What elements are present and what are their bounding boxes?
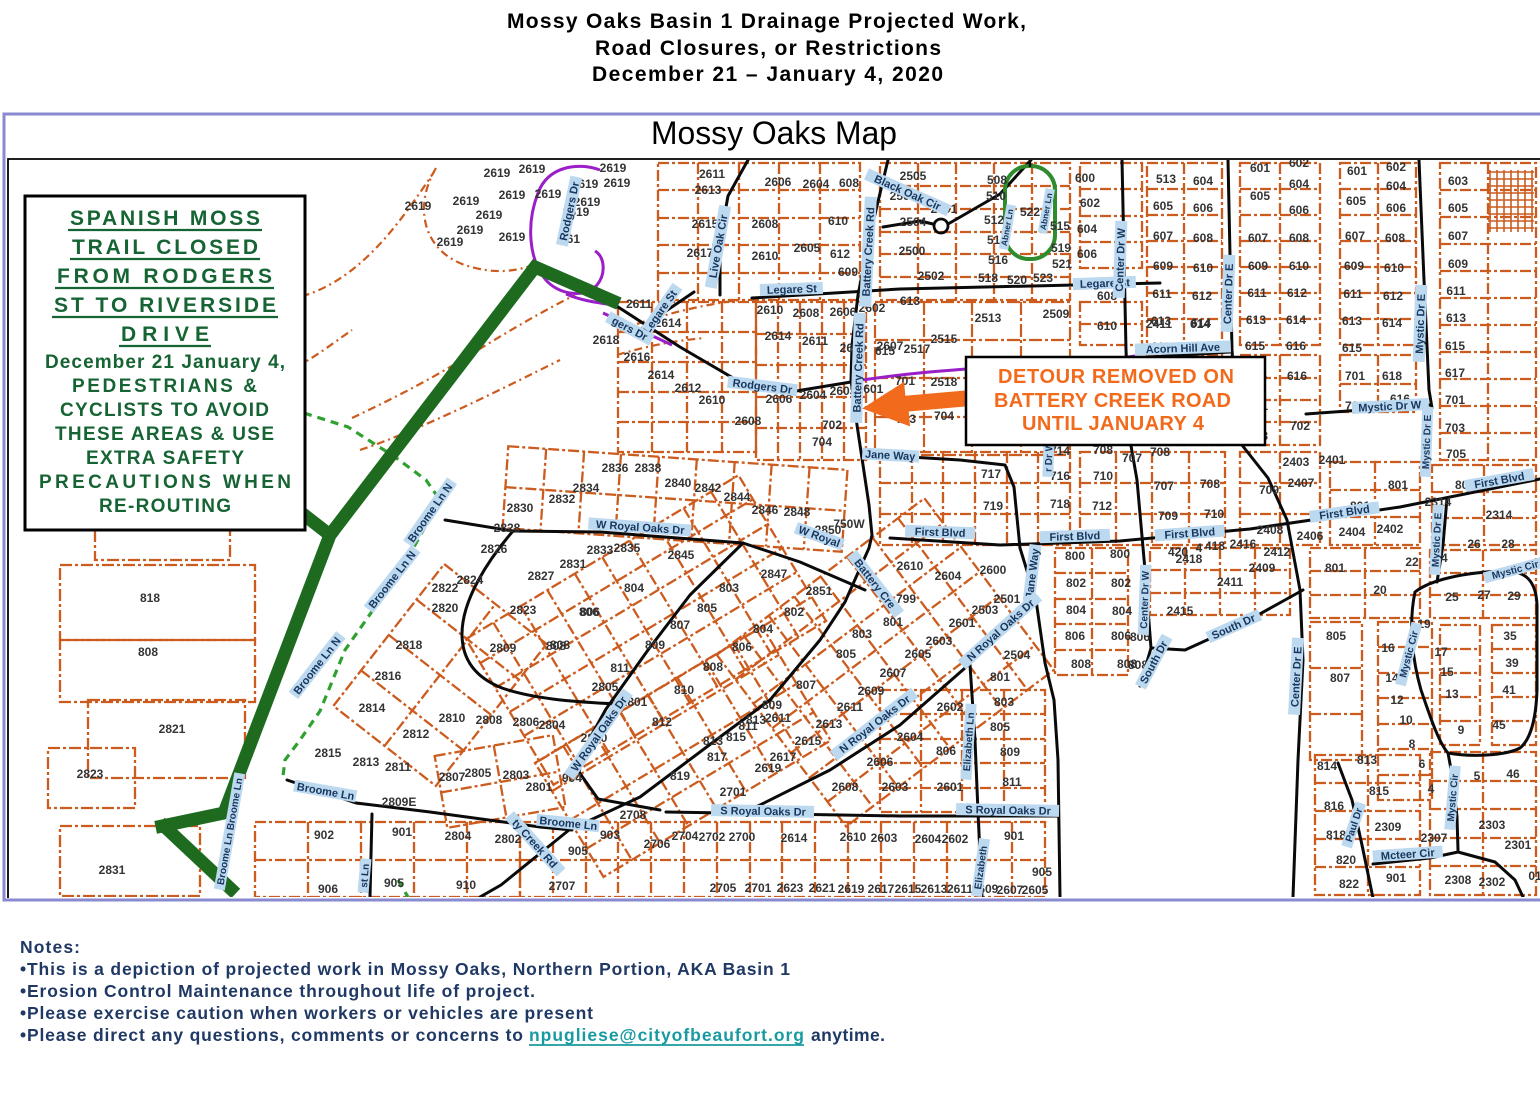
- svg-text:703: 703: [1445, 421, 1465, 435]
- svg-text:Mystic Dr E: Mystic Dr E: [1414, 294, 1428, 354]
- svg-text:2611: 2611: [947, 882, 973, 896]
- svg-text:•This is a depiction of projec: •This is a depiction of projected work i…: [20, 959, 790, 979]
- svg-text:2823: 2823: [510, 603, 537, 617]
- svg-text:2605: 2605: [1022, 883, 1049, 897]
- svg-text:808: 808: [1071, 657, 1091, 671]
- svg-text:2808: 2808: [476, 713, 503, 727]
- svg-text:2831: 2831: [99, 863, 126, 877]
- svg-text:THESE AREAS & USE: THESE AREAS & USE: [55, 424, 274, 445]
- svg-text:819: 819: [670, 769, 690, 783]
- svg-text:2600: 2600: [980, 563, 1007, 577]
- svg-text:2619: 2619: [600, 161, 627, 175]
- svg-text:521: 521: [1052, 257, 1072, 271]
- svg-text:2605: 2605: [905, 647, 932, 661]
- svg-text:10: 10: [1399, 713, 1413, 727]
- svg-text:2804: 2804: [445, 829, 472, 843]
- svg-text:DRIVE: DRIVE: [121, 323, 209, 346]
- svg-text:608: 608: [1289, 231, 1309, 245]
- svg-text:820: 820: [1336, 853, 1356, 867]
- svg-text:2611: 2611: [626, 297, 652, 311]
- svg-text:512: 512: [984, 213, 1004, 227]
- svg-text:CYCLISTS TO AVOID: CYCLISTS TO AVOID: [60, 400, 269, 421]
- svg-text:01: 01: [1528, 869, 1540, 883]
- svg-text:604: 604: [1077, 222, 1097, 236]
- svg-text:613: 613: [1342, 314, 1362, 328]
- svg-text:704: 704: [812, 435, 832, 449]
- svg-text:2611: 2611: [837, 700, 863, 714]
- svg-text:2701: 2701: [720, 785, 747, 799]
- svg-text:2835: 2835: [614, 541, 641, 555]
- svg-text:2619: 2619: [453, 194, 480, 208]
- svg-text:615: 615: [1245, 339, 1265, 353]
- svg-text:806: 806: [732, 640, 752, 654]
- svg-text:Legare St: Legare St: [767, 283, 818, 297]
- svg-text:2619: 2619: [499, 230, 526, 244]
- svg-text:2505: 2505: [900, 169, 927, 183]
- svg-text:2823: 2823: [77, 767, 104, 781]
- svg-text:2619: 2619: [484, 166, 511, 180]
- svg-text:2303: 2303: [1479, 818, 1506, 832]
- svg-text:2602: 2602: [942, 832, 969, 846]
- svg-text:801: 801: [883, 615, 903, 629]
- svg-text:910: 910: [456, 878, 476, 892]
- svg-text:2704: 2704: [672, 829, 699, 843]
- svg-text:12: 12: [1390, 693, 1404, 707]
- svg-text:606: 606: [1386, 201, 1406, 215]
- svg-text:2610: 2610: [699, 393, 726, 407]
- svg-text:605: 605: [1448, 201, 1468, 215]
- svg-text:2612: 2612: [675, 381, 702, 395]
- svg-text:901: 901: [1386, 871, 1406, 885]
- svg-text:802: 802: [1066, 576, 1086, 590]
- svg-text:605: 605: [1346, 194, 1366, 208]
- svg-text:2515: 2515: [931, 332, 958, 346]
- svg-text:806: 806: [579, 605, 599, 619]
- svg-text:2407: 2407: [1288, 476, 1315, 490]
- svg-text:npugliese@cityofbeaufort.org: npugliese@cityofbeaufort.org: [529, 1025, 804, 1045]
- svg-text:807: 807: [796, 678, 816, 692]
- svg-text:717: 717: [981, 467, 1001, 481]
- svg-text:2832: 2832: [549, 492, 576, 506]
- svg-text:2610: 2610: [897, 559, 924, 573]
- svg-text:2845: 2845: [668, 548, 695, 562]
- svg-text:604: 604: [1386, 179, 1406, 193]
- svg-text:608: 608: [1193, 231, 1213, 245]
- svg-text:901: 901: [1004, 829, 1024, 843]
- svg-text:610: 610: [1097, 319, 1117, 333]
- svg-text:2615: 2615: [692, 217, 719, 231]
- svg-text:613: 613: [1246, 313, 1266, 327]
- svg-text:2411: 2411: [1217, 575, 1243, 589]
- svg-text:606: 606: [1193, 201, 1213, 215]
- svg-text:2616: 2616: [624, 350, 651, 364]
- svg-text:523: 523: [1033, 271, 1053, 285]
- svg-text:615: 615: [875, 344, 895, 358]
- svg-text:609: 609: [1153, 259, 1173, 273]
- svg-text:710: 710: [1093, 469, 1113, 483]
- svg-text:809: 809: [762, 698, 782, 712]
- svg-text:609: 609: [1448, 257, 1468, 271]
- svg-text:13: 13: [1445, 687, 1459, 701]
- svg-text:615: 615: [1445, 339, 1465, 353]
- svg-text:2601: 2601: [937, 780, 964, 794]
- svg-text:803: 803: [994, 695, 1014, 709]
- svg-text:601: 601: [1347, 164, 1367, 178]
- svg-text:2707: 2707: [549, 879, 576, 893]
- svg-text:606: 606: [1077, 247, 1097, 261]
- svg-text:902: 902: [314, 828, 334, 842]
- svg-text:S Royal Oaks Dr: S Royal Oaks Dr: [720, 805, 807, 819]
- svg-text:2809E: 2809E: [382, 795, 417, 809]
- svg-text:2701: 2701: [745, 881, 772, 895]
- svg-text:2611: 2611: [699, 167, 725, 181]
- svg-text:710: 710: [1204, 507, 1224, 521]
- svg-text:2822: 2822: [432, 581, 459, 595]
- svg-text:2604: 2604: [800, 388, 827, 402]
- svg-text:2818: 2818: [396, 638, 423, 652]
- svg-text:813: 813: [703, 734, 723, 748]
- svg-text:2605: 2605: [794, 241, 821, 255]
- svg-text:608: 608: [1385, 231, 1405, 245]
- svg-text:610: 610: [1384, 261, 1404, 275]
- svg-text:46: 46: [1506, 767, 1520, 781]
- svg-text:817: 817: [707, 750, 727, 764]
- svg-text:2608: 2608: [735, 414, 762, 428]
- svg-text:2613: 2613: [816, 717, 843, 731]
- svg-text:2602: 2602: [937, 700, 964, 714]
- svg-text:522: 522: [1020, 205, 1040, 219]
- svg-text:2816: 2816: [375, 669, 402, 683]
- svg-text:805: 805: [990, 720, 1010, 734]
- svg-text:806: 806: [1065, 629, 1085, 643]
- svg-text:•Please exercise caution when: •Please exercise caution when workers or…: [20, 1003, 593, 1023]
- svg-text:2615: 2615: [895, 882, 922, 896]
- svg-text:614: 614: [1190, 317, 1210, 331]
- svg-text:822: 822: [1339, 877, 1359, 891]
- svg-text:701: 701: [1445, 393, 1465, 407]
- svg-text:611: 611: [1247, 286, 1267, 300]
- svg-text:2842: 2842: [695, 481, 722, 495]
- svg-text:2806: 2806: [513, 715, 540, 729]
- svg-text:2617: 2617: [868, 882, 895, 896]
- svg-text:818: 818: [140, 591, 160, 605]
- svg-text:st Ln: st Ln: [359, 863, 372, 888]
- svg-text:611: 611: [1446, 284, 1466, 298]
- svg-text:2805: 2805: [592, 680, 619, 694]
- svg-text:605: 605: [1153, 199, 1173, 213]
- svg-text:5: 5: [1474, 769, 1481, 783]
- svg-text:2603: 2603: [926, 634, 953, 648]
- svg-text:800: 800: [1110, 547, 1130, 561]
- svg-text:December 21 – January 4, 2020: December 21 – January 4, 2020: [592, 63, 943, 86]
- svg-text:705: 705: [1446, 447, 1466, 461]
- svg-text:2502: 2502: [918, 269, 945, 283]
- svg-text:510: 510: [986, 189, 1006, 203]
- svg-text:2415: 2415: [1167, 604, 1194, 618]
- svg-text:609: 609: [1344, 259, 1364, 273]
- svg-text:2838: 2838: [635, 461, 662, 475]
- svg-text:2702: 2702: [699, 830, 726, 844]
- svg-text:2309: 2309: [1375, 820, 1402, 834]
- svg-text:618: 618: [1382, 369, 1402, 383]
- svg-text:805: 805: [836, 647, 856, 661]
- svg-text:S Royal Oaks Dr: S Royal Oaks Dr: [965, 804, 1052, 818]
- svg-text:41: 41: [1502, 683, 1516, 697]
- svg-text:2517: 2517: [904, 342, 931, 356]
- svg-text:Notes:: Notes:: [20, 937, 80, 957]
- svg-text:611: 611: [1152, 287, 1172, 301]
- svg-text:905: 905: [568, 844, 588, 858]
- svg-text:803: 803: [852, 627, 872, 641]
- svg-text:712: 712: [1092, 499, 1112, 513]
- svg-text:2409: 2409: [1249, 561, 1276, 575]
- svg-text:604: 604: [1193, 174, 1213, 188]
- svg-text:607: 607: [1345, 229, 1365, 243]
- svg-text:2608: 2608: [832, 780, 859, 794]
- svg-text:2610: 2610: [752, 249, 779, 263]
- svg-text:20: 20: [1373, 583, 1387, 597]
- svg-text:2606: 2606: [765, 175, 792, 189]
- svg-text:2708: 2708: [620, 808, 647, 822]
- svg-text:603: 603: [1448, 174, 1468, 188]
- svg-text:2402: 2402: [1377, 522, 1404, 536]
- svg-text:2810: 2810: [439, 711, 466, 725]
- svg-text:801: 801: [1388, 478, 1408, 492]
- svg-text:2848: 2848: [784, 505, 811, 519]
- svg-text:2820: 2820: [432, 601, 459, 615]
- svg-text:DETOUR REMOVED ON: DETOUR REMOVED ON: [998, 366, 1234, 388]
- svg-text:2418: 2418: [1176, 552, 1203, 566]
- svg-text:610: 610: [1193, 261, 1213, 275]
- svg-text:609: 609: [838, 265, 858, 279]
- svg-text:2821: 2821: [159, 722, 186, 736]
- svg-text:607: 607: [1153, 229, 1173, 243]
- svg-text:2805: 2805: [465, 766, 492, 780]
- svg-text:2619: 2619: [755, 761, 782, 775]
- svg-text:804: 804: [753, 622, 773, 636]
- svg-text:606: 606: [1289, 203, 1309, 217]
- svg-text:808: 808: [550, 638, 570, 652]
- svg-text:2618: 2618: [593, 333, 620, 347]
- svg-text:2840: 2840: [665, 476, 692, 490]
- svg-text:Center Dr W: Center Dr W: [1114, 227, 1128, 292]
- svg-text:2811: 2811: [385, 760, 411, 774]
- svg-text:2844: 2844: [724, 490, 751, 504]
- svg-text:811: 811: [1002, 775, 1022, 789]
- svg-text:814: 814: [1317, 759, 1337, 773]
- svg-text:2604: 2604: [803, 177, 830, 191]
- svg-text:2831: 2831: [560, 557, 587, 571]
- svg-text:2509: 2509: [1043, 307, 1070, 321]
- svg-text:906: 906: [318, 882, 338, 896]
- svg-text:719: 719: [983, 499, 1003, 513]
- svg-text:Center Dr E: Center Dr E: [1222, 263, 1236, 324]
- svg-text:901: 901: [392, 825, 412, 839]
- svg-text:39: 39: [1505, 656, 1519, 670]
- svg-text:2302: 2302: [1479, 875, 1506, 889]
- svg-text:2613: 2613: [921, 882, 948, 896]
- svg-text:2824: 2824: [457, 573, 484, 587]
- svg-text:2504: 2504: [900, 215, 927, 229]
- svg-text:2804: 2804: [539, 718, 566, 732]
- svg-text:518: 518: [978, 271, 998, 285]
- svg-text:2301: 2301: [1505, 838, 1532, 852]
- svg-text:TRAIL CLOSED: TRAIL CLOSED: [72, 236, 258, 259]
- svg-text:610: 610: [1289, 259, 1309, 273]
- svg-text:607: 607: [1248, 231, 1268, 245]
- svg-text:9: 9: [1458, 723, 1465, 737]
- svg-text:2416: 2416: [1230, 537, 1257, 551]
- svg-text:2847: 2847: [761, 567, 788, 581]
- svg-text:December 21 January 4,: December 21 January 4,: [45, 352, 285, 373]
- svg-text:804: 804: [624, 581, 644, 595]
- svg-text:27: 27: [1477, 588, 1491, 602]
- svg-text:2851: 2851: [806, 584, 833, 598]
- svg-text:516: 516: [988, 253, 1008, 267]
- svg-text:812: 812: [652, 715, 672, 729]
- svg-text:2503: 2503: [972, 603, 999, 617]
- svg-text:2812: 2812: [403, 727, 430, 741]
- svg-text:2314: 2314: [1486, 508, 1513, 522]
- svg-text:801: 801: [1325, 561, 1345, 575]
- svg-text:PRECAUTIONS WHEN: PRECAUTIONS WHEN: [39, 472, 291, 493]
- svg-text:2601: 2601: [949, 616, 976, 630]
- svg-text:905: 905: [1032, 865, 1052, 879]
- svg-text:2611: 2611: [765, 711, 791, 725]
- svg-text:2705: 2705: [710, 881, 737, 895]
- svg-text:2406: 2406: [1297, 529, 1324, 543]
- svg-text:515: 515: [1050, 219, 1070, 233]
- svg-text:2608: 2608: [752, 217, 779, 231]
- svg-text:2619: 2619: [405, 199, 432, 213]
- svg-text:601: 601: [1250, 161, 1270, 175]
- svg-text:2614: 2614: [765, 329, 792, 343]
- svg-text:2611: 2611: [802, 334, 828, 348]
- svg-text:4: 4: [1428, 782, 1435, 796]
- svg-text:2826: 2826: [481, 542, 508, 556]
- svg-text:2614: 2614: [781, 831, 808, 845]
- svg-text:2608: 2608: [793, 306, 820, 320]
- svg-text:2308: 2308: [1445, 873, 1472, 887]
- svg-text:602: 602: [1386, 160, 1406, 174]
- svg-text:RE-ROUTING: RE-ROUTING: [99, 496, 231, 517]
- svg-text:26: 26: [1467, 537, 1481, 551]
- svg-text:799: 799: [896, 592, 916, 606]
- svg-text:905: 905: [384, 876, 404, 890]
- svg-text:2607: 2607: [997, 883, 1024, 897]
- svg-text:2513: 2513: [975, 311, 1002, 325]
- svg-text:2606: 2606: [830, 305, 857, 319]
- svg-text:2830: 2830: [507, 501, 534, 515]
- svg-text:718: 718: [1050, 497, 1070, 511]
- svg-text:2706: 2706: [644, 837, 671, 851]
- svg-text:802: 802: [784, 605, 804, 619]
- svg-text:Mossy Oaks Map: Mossy Oaks Map: [651, 115, 897, 151]
- svg-text:2412: 2412: [1264, 545, 1291, 559]
- svg-text:614: 614: [1286, 313, 1306, 327]
- svg-text:808: 808: [138, 645, 158, 659]
- svg-text:16: 16: [1381, 641, 1395, 655]
- svg-text:2833: 2833: [587, 543, 614, 557]
- svg-text:SPANISH MOSS: SPANISH MOSS: [70, 207, 260, 230]
- svg-text:2500: 2500: [899, 244, 926, 258]
- svg-text:815: 815: [1369, 784, 1389, 798]
- svg-text:614: 614: [1382, 316, 1402, 330]
- svg-text:2606: 2606: [867, 755, 894, 769]
- svg-text:615: 615: [1342, 341, 1362, 355]
- svg-text:2614: 2614: [648, 368, 675, 382]
- svg-text:2619: 2619: [519, 162, 546, 176]
- svg-text:808: 808: [703, 660, 723, 674]
- svg-text:617: 617: [1445, 366, 1465, 380]
- svg-text:2836: 2836: [602, 461, 629, 475]
- svg-text:709: 709: [1259, 483, 1279, 497]
- svg-text:22: 22: [1405, 555, 1419, 569]
- svg-text:508: 508: [987, 173, 1007, 187]
- svg-text:2700: 2700: [729, 830, 756, 844]
- svg-text:803: 803: [719, 581, 739, 595]
- svg-text:520: 520: [1007, 273, 1027, 287]
- svg-text:702: 702: [1290, 419, 1310, 433]
- svg-text:809: 809: [1000, 745, 1020, 759]
- svg-text:2518: 2518: [931, 375, 958, 389]
- svg-text:2619: 2619: [437, 235, 464, 249]
- svg-text:804: 804: [1066, 603, 1086, 617]
- svg-text:2623: 2623: [777, 881, 804, 895]
- svg-text:Road Closures, or Restrictions: Road Closures, or Restrictions: [595, 37, 941, 60]
- svg-text:First Blvd: First Blvd: [1049, 530, 1100, 544]
- svg-text:PEDESTRIANS &: PEDESTRIANS &: [72, 376, 257, 397]
- svg-text:anytime.: anytime.: [811, 1025, 885, 1045]
- svg-text:2610: 2610: [757, 303, 784, 317]
- svg-text:806: 806: [936, 744, 956, 758]
- svg-text:2603: 2603: [871, 831, 898, 845]
- svg-text:2619: 2619: [604, 176, 631, 190]
- svg-text:First Blvd: First Blvd: [915, 526, 966, 540]
- svg-text:616: 616: [1287, 369, 1307, 383]
- svg-text:418: 418: [1205, 539, 1225, 553]
- svg-text:2604: 2604: [935, 569, 962, 583]
- svg-text:816: 816: [1324, 799, 1344, 813]
- svg-text:29: 29: [1507, 589, 1521, 603]
- svg-text:15: 15: [1440, 665, 1454, 679]
- svg-text:612: 612: [1383, 289, 1403, 303]
- svg-text:804: 804: [1112, 604, 1132, 618]
- svg-text:811: 811: [738, 719, 758, 733]
- svg-text:800: 800: [1065, 549, 1085, 563]
- svg-text:2619: 2619: [838, 882, 865, 896]
- svg-text:2607: 2607: [880, 666, 907, 680]
- svg-text:2619: 2619: [499, 188, 526, 202]
- svg-text:802: 802: [1111, 576, 1131, 590]
- svg-text:45: 45: [1492, 718, 1506, 732]
- svg-text:704: 704: [934, 409, 954, 423]
- svg-text:6: 6: [1419, 757, 1426, 771]
- svg-text:2834: 2834: [573, 481, 600, 495]
- svg-text:612: 612: [830, 247, 850, 261]
- svg-text:809: 809: [645, 638, 665, 652]
- svg-text:600: 600: [1075, 171, 1095, 185]
- svg-text:609: 609: [1248, 259, 1268, 273]
- svg-text:807: 807: [670, 618, 690, 632]
- svg-text:2814: 2814: [359, 701, 386, 715]
- svg-text:28: 28: [1501, 537, 1515, 551]
- svg-text:611: 611: [1343, 287, 1363, 301]
- svg-text:BATTERY CREEK ROAD: BATTERY CREEK ROAD: [994, 390, 1231, 412]
- svg-text:519: 519: [1051, 241, 1071, 255]
- svg-text:2404: 2404: [1339, 525, 1366, 539]
- svg-text:701: 701: [1345, 369, 1365, 383]
